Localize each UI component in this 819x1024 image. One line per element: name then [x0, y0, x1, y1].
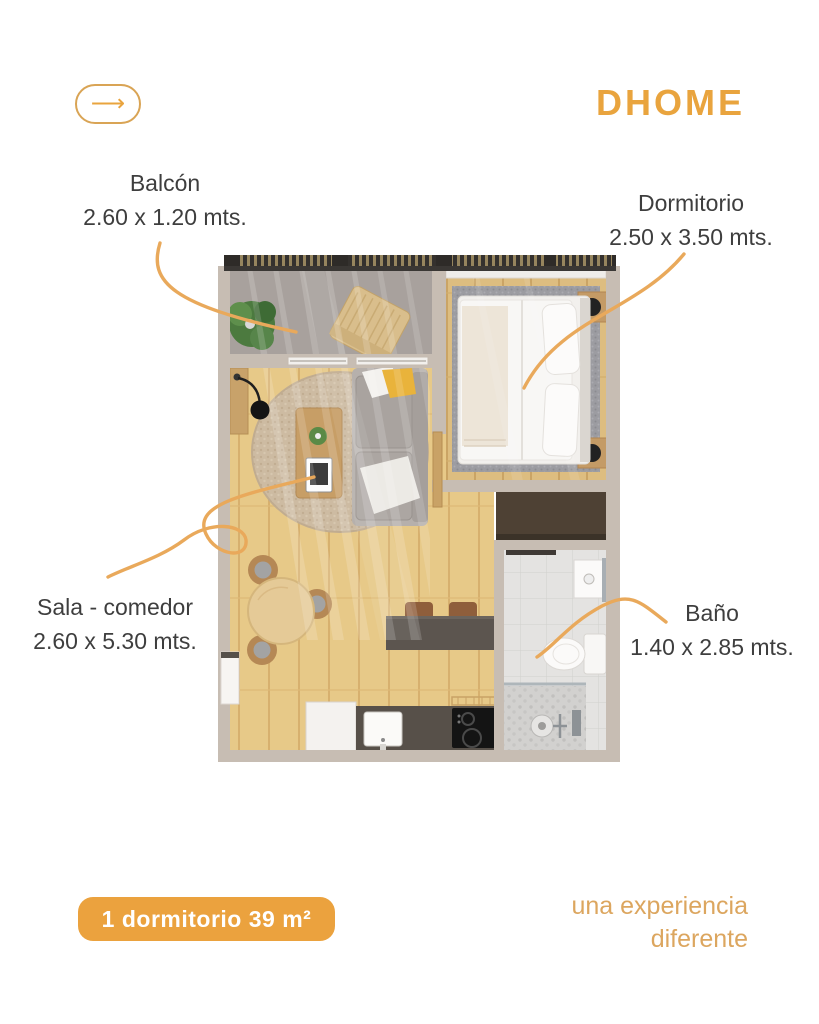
- flyer-page: ⟶ DHOME Balcón 2.60 x 1.20 mts. Dormitor…: [0, 0, 819, 1024]
- unit-type-badge: 1 dormitorio 39 m²: [78, 897, 335, 941]
- bedroom-door: [433, 432, 442, 507]
- floor-plan: [0, 0, 819, 1024]
- balcony-railing: [224, 255, 616, 271]
- balcony-sliding-door: [288, 357, 428, 365]
- brand-tagline: una experiencia diferente: [571, 890, 748, 955]
- closet: [496, 490, 612, 540]
- fridge: [306, 702, 356, 752]
- bed: [458, 292, 608, 468]
- wall-panel: [221, 652, 239, 704]
- cooktop: [452, 708, 496, 748]
- tagline-line: una experiencia: [571, 890, 748, 923]
- tagline-line: diferente: [571, 923, 748, 956]
